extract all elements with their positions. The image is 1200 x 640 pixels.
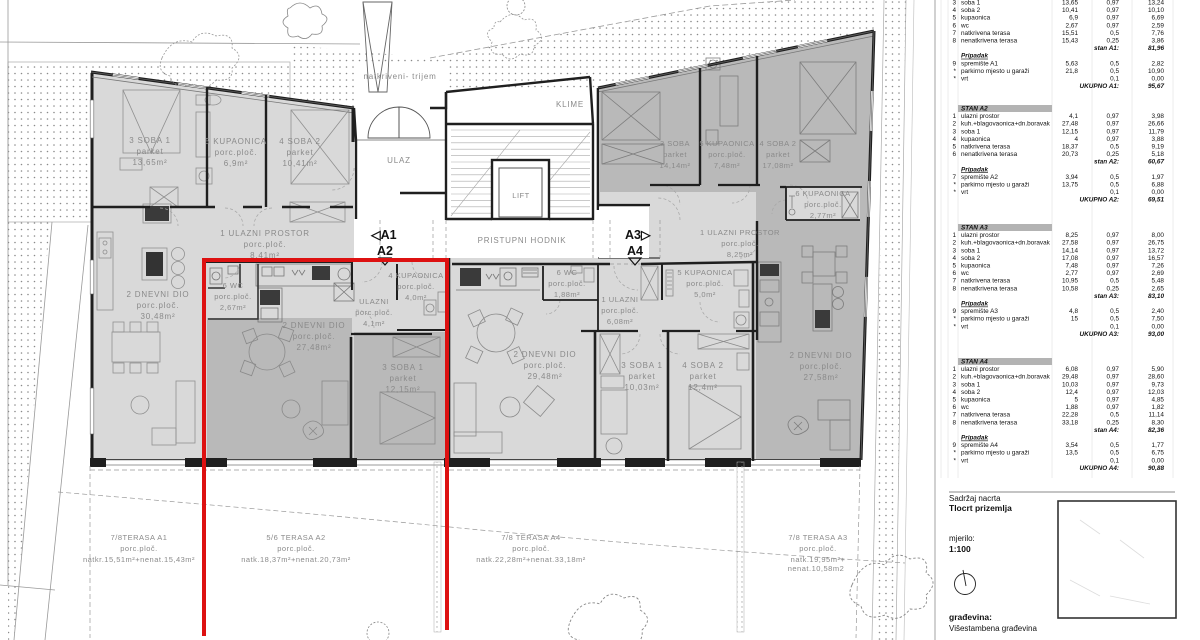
svg-text:7: 7 [952, 174, 956, 181]
svg-text:4,8: 4,8 [1069, 308, 1078, 315]
svg-text:15,43: 15,43 [1062, 38, 1078, 45]
svg-text:29,48: 29,48 [1062, 374, 1078, 381]
svg-text:3 SOBA 1: 3 SOBA 1 [621, 361, 663, 370]
svg-text:4: 4 [952, 255, 956, 262]
svg-text:29,48m²: 29,48m² [528, 372, 563, 381]
svg-text:0,00: 0,00 [1152, 323, 1165, 330]
svg-text:vrt: vrt [961, 323, 968, 330]
svg-text:STAN A2: STAN A2 [961, 106, 988, 113]
svg-text:33,18: 33,18 [1062, 419, 1078, 426]
svg-text:21,8: 21,8 [1066, 68, 1079, 75]
svg-text:nenatkrivena terasa: nenatkrivena terasa [961, 38, 1018, 45]
svg-text:0,5: 0,5 [1110, 68, 1119, 75]
svg-text:27,58: 27,58 [1062, 240, 1078, 247]
svg-text:porc.ploč.: porc.ploč. [804, 200, 842, 209]
svg-text:PRISTUPNI HODNIK: PRISTUPNI HODNIK [478, 236, 567, 245]
svg-text:vrt: vrt [961, 189, 968, 196]
svg-text:ulazni prostor: ulazni prostor [961, 113, 1000, 120]
svg-text:7: 7 [952, 412, 956, 419]
svg-text:5 KUPAONICA: 5 KUPAONICA [205, 137, 267, 146]
svg-text:porc.ploč.: porc.ploč. [277, 544, 315, 553]
svg-text:LIFT: LIFT [512, 191, 529, 200]
svg-text:81,96: 81,96 [1148, 45, 1164, 52]
svg-text:wc: wc [960, 270, 970, 277]
svg-text:kuh.+blagovaonica+dn.boravak: kuh.+blagovaonica+dn.boravak [961, 374, 1051, 381]
svg-text:15: 15 [1071, 316, 1079, 323]
svg-text:93,00: 93,00 [1148, 331, 1164, 338]
svg-text:12,4: 12,4 [1066, 389, 1079, 396]
svg-text:parkirno mjesto u garaži: parkirno mjesto u garaži [961, 316, 1029, 323]
svg-text:1:100: 1:100 [949, 544, 971, 554]
svg-text:0,97: 0,97 [1107, 374, 1120, 381]
svg-text:wc: wc [960, 22, 970, 29]
svg-text:69,51: 69,51 [1148, 197, 1164, 204]
svg-text:6,69: 6,69 [1152, 15, 1165, 22]
svg-text:6,88: 6,88 [1152, 182, 1165, 189]
svg-text:kupaonica: kupaonica [961, 15, 991, 22]
svg-text:9,73: 9,73 [1152, 381, 1165, 388]
svg-text:Sadržaj nacrta: Sadržaj nacrta [949, 494, 1001, 503]
svg-text:7: 7 [952, 30, 956, 37]
svg-text:0,5: 0,5 [1110, 412, 1119, 419]
svg-text:3,54: 3,54 [1066, 442, 1079, 449]
svg-text:0,97: 0,97 [1107, 404, 1120, 411]
svg-text:0,00: 0,00 [1152, 457, 1165, 464]
svg-text:nenatkrivena terasa: nenatkrivena terasa [961, 285, 1018, 292]
svg-text:soba 2: soba 2 [961, 389, 981, 396]
svg-text:2 DNEVNI DIO: 2 DNEVNI DIO [127, 290, 190, 299]
svg-text:Pripadak: Pripadak [961, 301, 988, 308]
svg-text:14,14: 14,14 [1062, 247, 1078, 254]
svg-text:UKUPNO A4:: UKUPNO A4: [1079, 465, 1119, 472]
svg-text:18,37: 18,37 [1062, 144, 1078, 151]
svg-text:natkrivena terasa: natkrivena terasa [961, 412, 1010, 419]
svg-text:0,5: 0,5 [1110, 278, 1119, 285]
svg-text:parkirno mjesto u garaži: parkirno mjesto u garaži [961, 68, 1029, 75]
svg-text:15,51: 15,51 [1062, 30, 1078, 37]
svg-text:8,25m²: 8,25m² [727, 250, 753, 259]
svg-text:0,00: 0,00 [1152, 76, 1165, 83]
svg-text:3 SOBA 1: 3 SOBA 1 [129, 136, 171, 145]
svg-text:1,88: 1,88 [1066, 404, 1079, 411]
svg-text:6,9: 6,9 [1069, 15, 1078, 22]
svg-text:2,77: 2,77 [1066, 270, 1079, 277]
svg-text:parket: parket [766, 150, 790, 159]
svg-text:13,24: 13,24 [1148, 0, 1164, 7]
svg-text:5 KUPAONICA: 5 KUPAONICA [699, 139, 754, 148]
svg-text:parket: parket [628, 372, 655, 381]
svg-text:30,48m²: 30,48m² [141, 312, 176, 321]
svg-text:3: 3 [952, 0, 956, 7]
svg-text:8: 8 [952, 285, 956, 292]
svg-text:0,5: 0,5 [1110, 450, 1119, 457]
svg-text:8: 8 [952, 419, 956, 426]
svg-text:stan A2:: stan A2: [1094, 159, 1119, 166]
svg-text:6: 6 [952, 151, 956, 158]
svg-text:0,97: 0,97 [1107, 263, 1120, 270]
svg-text:16,57: 16,57 [1148, 255, 1164, 262]
svg-text:0,00: 0,00 [1152, 189, 1165, 196]
svg-text:UKUPNO A2:: UKUPNO A2: [1079, 197, 1119, 204]
svg-text:1,77: 1,77 [1152, 442, 1165, 449]
svg-text:parket: parket [136, 147, 163, 156]
svg-text:Višestambena građevina: Višestambena građevina [949, 624, 1037, 633]
svg-text:9: 9 [952, 442, 956, 449]
svg-text:8,30: 8,30 [1152, 419, 1165, 426]
svg-text:0,97: 0,97 [1107, 255, 1120, 262]
svg-text:2 DNEVNI DIO: 2 DNEVNI DIO [283, 321, 346, 330]
svg-text:0,5: 0,5 [1110, 182, 1119, 189]
svg-text:12,03: 12,03 [1148, 389, 1164, 396]
svg-text:soba 1: soba 1 [961, 247, 981, 254]
svg-text:porc.ploč.: porc.ploč. [214, 292, 252, 301]
svg-text:6: 6 [952, 270, 956, 277]
svg-text:3,98: 3,98 [1152, 113, 1165, 120]
svg-text:parket: parket [389, 374, 416, 383]
svg-text:0,5: 0,5 [1110, 60, 1119, 67]
svg-text:2: 2 [952, 121, 956, 128]
svg-text:10,95: 10,95 [1062, 278, 1078, 285]
svg-text:2,67: 2,67 [1066, 22, 1079, 29]
svg-text:17,08m²: 17,08m² [762, 161, 793, 170]
svg-text:parket: parket [663, 150, 687, 159]
svg-text:2,40: 2,40 [1152, 308, 1165, 315]
svg-text:7,26: 7,26 [1152, 263, 1165, 270]
svg-text:6,75: 6,75 [1152, 450, 1165, 457]
svg-text:4 SOBA 2: 4 SOBA 2 [682, 361, 724, 370]
svg-text:3,88: 3,88 [1152, 136, 1165, 143]
svg-text:12,15: 12,15 [1062, 128, 1078, 135]
svg-text:UKUPNO A3:: UKUPNO A3: [1079, 331, 1119, 338]
svg-text:0,5: 0,5 [1110, 316, 1119, 323]
svg-text:27,58m²: 27,58m² [804, 373, 839, 382]
svg-text:2,65: 2,65 [1152, 285, 1165, 292]
svg-text:1,97: 1,97 [1152, 174, 1165, 181]
svg-text:mjerilo:: mjerilo: [949, 534, 975, 543]
svg-text:28,60: 28,60 [1148, 374, 1164, 381]
svg-text:5: 5 [952, 263, 956, 270]
svg-text:22,28: 22,28 [1062, 412, 1078, 419]
svg-text:82,36: 82,36 [1148, 427, 1164, 434]
svg-text:4,1m²: 4,1m² [363, 319, 385, 328]
svg-text:4: 4 [1074, 136, 1078, 143]
svg-text:0,97: 0,97 [1107, 113, 1120, 120]
svg-text:stan A4:: stan A4: [1094, 427, 1119, 434]
svg-text:spremište A2: spremište A2 [961, 174, 998, 181]
svg-text:stan A3:: stan A3: [1094, 293, 1119, 300]
svg-text:2,82: 2,82 [1152, 60, 1165, 67]
svg-text:natk.18,37m²+nenat.20,73m²: natk.18,37m²+nenat.20,73m² [241, 555, 351, 564]
svg-text:0,5: 0,5 [1110, 144, 1119, 151]
svg-text:1,88m²: 1,88m² [554, 290, 580, 299]
svg-text:parket: parket [689, 372, 716, 381]
svg-text:3,94: 3,94 [1066, 174, 1079, 181]
svg-text:0,97: 0,97 [1107, 22, 1120, 29]
svg-text:UKUPNO A1:: UKUPNO A1: [1079, 83, 1119, 90]
svg-text:A2: A2 [377, 244, 393, 258]
svg-text:STAN A3: STAN A3 [961, 225, 988, 232]
svg-text:1: 1 [952, 232, 956, 239]
svg-text:natkrivena terasa: natkrivena terasa [961, 30, 1010, 37]
svg-text:kupaonica: kupaonica [961, 263, 991, 270]
svg-text:natkrivena terasa: natkrivena terasa [961, 278, 1010, 285]
svg-text:porc.ploč.: porc.ploč. [244, 240, 287, 249]
svg-text:0,97: 0,97 [1107, 366, 1120, 373]
svg-text:10,58: 10,58 [1062, 285, 1078, 292]
svg-text:Tlocrt prizemlja: Tlocrt prizemlja [949, 503, 1012, 513]
svg-text:kupaonica: kupaonica [961, 397, 991, 404]
svg-text:6 WC: 6 WC [223, 281, 244, 290]
svg-text:0,97: 0,97 [1107, 389, 1120, 396]
svg-text:27,48m²: 27,48m² [297, 343, 332, 352]
svg-text:natkr.15,51m²+nenat.15,43m²: natkr.15,51m²+nenat.15,43m² [83, 555, 195, 564]
svg-text:3: 3 [952, 381, 956, 388]
svg-text:Pripadak: Pripadak [961, 53, 988, 60]
svg-text:5,48: 5,48 [1152, 278, 1165, 285]
svg-text:ULAZ: ULAZ [387, 156, 411, 165]
svg-text:26,66: 26,66 [1148, 121, 1164, 128]
svg-text:ULAZNI: ULAZNI [359, 297, 389, 306]
svg-text:5,18: 5,18 [1152, 151, 1165, 158]
svg-text:0,97: 0,97 [1107, 381, 1120, 388]
svg-text:porc.ploč.: porc.ploč. [524, 361, 567, 370]
svg-text:ulazni prostor: ulazni prostor [961, 232, 1000, 239]
svg-text:0,5: 0,5 [1110, 308, 1119, 315]
svg-text:13,5: 13,5 [1066, 450, 1079, 457]
svg-text:7,48: 7,48 [1066, 263, 1079, 270]
svg-text:2,77m²: 2,77m² [810, 211, 836, 220]
svg-text:3,86: 3,86 [1152, 38, 1165, 45]
svg-text:parket: parket [286, 148, 313, 157]
svg-text:0,5: 0,5 [1110, 30, 1119, 37]
svg-text:1,82: 1,82 [1152, 404, 1165, 411]
svg-text:0,1: 0,1 [1110, 323, 1119, 330]
svg-text:6 WC: 6 WC [557, 268, 578, 277]
svg-text:2: 2 [952, 374, 956, 381]
svg-text:3: 3 [952, 128, 956, 135]
svg-text:6,08m²: 6,08m² [607, 317, 633, 326]
svg-text:10,41: 10,41 [1062, 7, 1078, 14]
svg-text:60,67: 60,67 [1148, 159, 1164, 166]
svg-text:3: 3 [952, 247, 956, 254]
svg-text:26,75: 26,75 [1148, 240, 1164, 247]
svg-text:2,69: 2,69 [1152, 270, 1165, 277]
svg-text:ulazni prostor: ulazni prostor [961, 366, 1000, 373]
svg-text:7,50: 7,50 [1152, 316, 1165, 323]
svg-text:2 DNEVNI DIO: 2 DNEVNI DIO [790, 351, 853, 360]
svg-text:5/6 TERASA A2: 5/6 TERASA A2 [266, 533, 325, 542]
svg-text:natk.22,28m²+nenat.33,18m²: natk.22,28m²+nenat.33,18m² [476, 555, 586, 564]
svg-text:13,65m²: 13,65m² [133, 158, 168, 167]
svg-text:0,97: 0,97 [1107, 270, 1120, 277]
svg-text:6,9m²: 6,9m² [224, 159, 248, 168]
svg-text:2,59: 2,59 [1152, 22, 1165, 29]
svg-text:3 SOBA 1: 3 SOBA 1 [382, 363, 424, 372]
svg-text:7/8TERASA A1: 7/8TERASA A1 [111, 533, 168, 542]
svg-text:natk.19,95m²+: natk.19,95m²+ [791, 555, 846, 564]
svg-text:4 SOBA 2: 4 SOBA 2 [279, 137, 321, 146]
svg-text:1: 1 [952, 366, 956, 373]
svg-text:4,1: 4,1 [1069, 113, 1078, 120]
svg-text:4,85: 4,85 [1152, 397, 1165, 404]
svg-text:0,97: 0,97 [1107, 0, 1120, 7]
svg-text:11,14: 11,14 [1148, 412, 1164, 419]
svg-text:90,88: 90,88 [1148, 465, 1164, 472]
svg-text:Pripadak: Pripadak [961, 166, 988, 173]
svg-text:2 DNEVNI DIO: 2 DNEVNI DIO [514, 350, 577, 359]
svg-text:porc.ploč.: porc.ploč. [137, 301, 180, 310]
svg-text:0,5: 0,5 [1110, 442, 1119, 449]
svg-text:0,25: 0,25 [1107, 38, 1120, 45]
svg-text:0,1: 0,1 [1110, 457, 1119, 464]
svg-text:◁A1: ◁A1 [370, 228, 397, 242]
svg-text:porc.ploč.: porc.ploč. [293, 332, 336, 341]
svg-text:kupaonica: kupaonica [961, 136, 991, 143]
svg-text:20,73: 20,73 [1062, 151, 1078, 158]
svg-text:soba 2: soba 2 [961, 255, 981, 262]
svg-text:soba 2: soba 2 [961, 7, 981, 14]
svg-text:vrt: vrt [961, 457, 968, 464]
svg-text:1: 1 [952, 113, 956, 120]
svg-text:9: 9 [952, 308, 956, 315]
svg-text:5: 5 [952, 15, 956, 22]
svg-text:5,63: 5,63 [1066, 60, 1079, 67]
svg-text:1 ULAZNI PROSTOR: 1 ULAZNI PROSTOR [220, 229, 310, 238]
svg-text:spremište A4: spremište A4 [961, 442, 998, 449]
svg-text:12,15m²: 12,15m² [386, 385, 421, 394]
svg-text:6 KUPAONICA: 6 KUPAONICA [795, 189, 850, 198]
svg-text:porc.ploč.: porc.ploč. [215, 148, 258, 157]
svg-text:parkirno mjesto u garaži: parkirno mjesto u garaži [961, 450, 1029, 457]
svg-text:1 ULAZNI: 1 ULAZNI [602, 295, 639, 304]
svg-text:1 ULAZNI PROSTOR: 1 ULAZNI PROSTOR [700, 228, 780, 237]
svg-text:porc.ploč.: porc.ploč. [512, 544, 550, 553]
svg-text:9: 9 [952, 60, 956, 67]
svg-text:13,72: 13,72 [1148, 247, 1164, 254]
svg-text:spremište A1: spremište A1 [961, 60, 998, 67]
svg-text:3 SOBA: 3 SOBA [660, 139, 690, 148]
svg-text:7,48m²: 7,48m² [714, 161, 740, 170]
svg-text:0,97: 0,97 [1107, 397, 1120, 404]
svg-text:0,5: 0,5 [1110, 174, 1119, 181]
svg-text:wc: wc [960, 404, 970, 411]
svg-text:4 KUPAONICA: 4 KUPAONICA [388, 271, 443, 280]
svg-text:17,08: 17,08 [1062, 255, 1078, 262]
svg-text:soba 1: soba 1 [961, 0, 981, 7]
svg-text:4: 4 [952, 136, 956, 143]
svg-text:4: 4 [952, 7, 956, 14]
svg-text:natkriveni- trijem: natkriveni- trijem [363, 72, 436, 81]
svg-text:nenatkrivena terasa: nenatkrivena terasa [961, 151, 1018, 158]
svg-text:5,0m²: 5,0m² [694, 290, 716, 299]
svg-text:0,97: 0,97 [1107, 128, 1120, 135]
svg-text:4 SOBA 2: 4 SOBA 2 [760, 139, 797, 148]
svg-text:7/8 TERASA A4: 7/8 TERASA A4 [501, 533, 560, 542]
svg-text:porc.ploč.: porc.ploč. [799, 544, 837, 553]
svg-text:porc.ploč.: porc.ploč. [397, 282, 435, 291]
svg-text:0,97: 0,97 [1107, 232, 1120, 239]
svg-text:građevina:: građevina: [949, 612, 992, 622]
svg-text:5: 5 [1074, 397, 1078, 404]
svg-text:12,4m²: 12,4m² [688, 383, 718, 392]
svg-text:4: 4 [952, 389, 956, 396]
svg-text:13,75: 13,75 [1062, 182, 1078, 189]
svg-text:spremište A3: spremište A3 [961, 308, 998, 315]
svg-text:soba 1: soba 1 [961, 128, 981, 135]
svg-text:STAN A4: STAN A4 [961, 359, 988, 366]
svg-text:5: 5 [952, 397, 956, 404]
svg-text:vrt: vrt [961, 76, 968, 83]
svg-text:83,10: 83,10 [1148, 293, 1164, 300]
svg-text:KLIME: KLIME [556, 100, 584, 109]
svg-text:0,1: 0,1 [1110, 76, 1119, 83]
svg-text:0,97: 0,97 [1107, 240, 1120, 247]
svg-text:9,19: 9,19 [1152, 144, 1165, 151]
svg-text:8: 8 [952, 38, 956, 45]
svg-text:porc.ploč.: porc.ploč. [601, 306, 639, 315]
svg-text:natkrivena terasa: natkrivena terasa [961, 144, 1010, 151]
svg-text:nenat.10,58m2: nenat.10,58m2 [788, 564, 845, 573]
svg-text:0,25: 0,25 [1107, 285, 1120, 292]
svg-text:2,67m²: 2,67m² [220, 303, 246, 312]
svg-text:6: 6 [952, 404, 956, 411]
svg-text:10,90: 10,90 [1148, 68, 1164, 75]
svg-text:95,67: 95,67 [1148, 83, 1164, 90]
svg-text:A4: A4 [627, 244, 643, 258]
svg-text:0,97: 0,97 [1107, 7, 1120, 14]
svg-text:0,97: 0,97 [1107, 136, 1120, 143]
svg-text:7,76: 7,76 [1152, 30, 1165, 37]
svg-text:porc.ploč.: porc.ploč. [721, 239, 759, 248]
svg-text:10,03m²: 10,03m² [625, 383, 660, 392]
svg-text:10,10: 10,10 [1148, 7, 1164, 14]
svg-text:5 KUPAONICA: 5 KUPAONICA [677, 268, 732, 277]
svg-text:porc.ploč.: porc.ploč. [120, 544, 158, 553]
svg-text:0,25: 0,25 [1107, 151, 1120, 158]
svg-text:11,79: 11,79 [1148, 128, 1164, 135]
svg-text:5: 5 [952, 144, 956, 151]
svg-text:nenatkrivena terasa: nenatkrivena terasa [961, 419, 1018, 426]
svg-text:10,41m²: 10,41m² [283, 159, 318, 168]
svg-text:10,03: 10,03 [1062, 381, 1078, 388]
svg-text:Pripadak: Pripadak [961, 435, 988, 442]
svg-text:8,25: 8,25 [1066, 232, 1079, 239]
svg-text:5,90: 5,90 [1152, 366, 1165, 373]
svg-text:8,00: 8,00 [1152, 232, 1165, 239]
svg-text:0,25: 0,25 [1107, 419, 1120, 426]
svg-text:6,08: 6,08 [1066, 366, 1079, 373]
svg-text:stan A1:: stan A1: [1094, 45, 1119, 52]
svg-text:7: 7 [952, 278, 956, 285]
svg-text:4,0m²: 4,0m² [405, 293, 427, 302]
svg-text:kuh.+blagovaonica+dn.boravak: kuh.+blagovaonica+dn.boravak [961, 121, 1051, 128]
svg-text:2: 2 [952, 240, 956, 247]
svg-text:6: 6 [952, 22, 956, 29]
svg-text:7/8 TERASA A3: 7/8 TERASA A3 [788, 533, 847, 542]
svg-text:13,65: 13,65 [1062, 0, 1078, 7]
svg-text:27,48: 27,48 [1062, 121, 1078, 128]
svg-text:kuh.+blagovaonica+dn.boravak: kuh.+blagovaonica+dn.boravak [961, 240, 1051, 247]
svg-text:14,14m²: 14,14m² [659, 161, 690, 170]
svg-text:porc.ploč.: porc.ploč. [548, 279, 586, 288]
svg-text:0,97: 0,97 [1107, 15, 1120, 22]
svg-text:porc.ploč.: porc.ploč. [355, 308, 393, 317]
svg-text:porc.ploč.: porc.ploč. [686, 279, 724, 288]
svg-text:0,1: 0,1 [1110, 189, 1119, 196]
svg-text:porc.ploč.: porc.ploč. [800, 362, 843, 371]
svg-text:0,97: 0,97 [1107, 247, 1120, 254]
svg-text:A3▷: A3▷ [625, 228, 652, 242]
